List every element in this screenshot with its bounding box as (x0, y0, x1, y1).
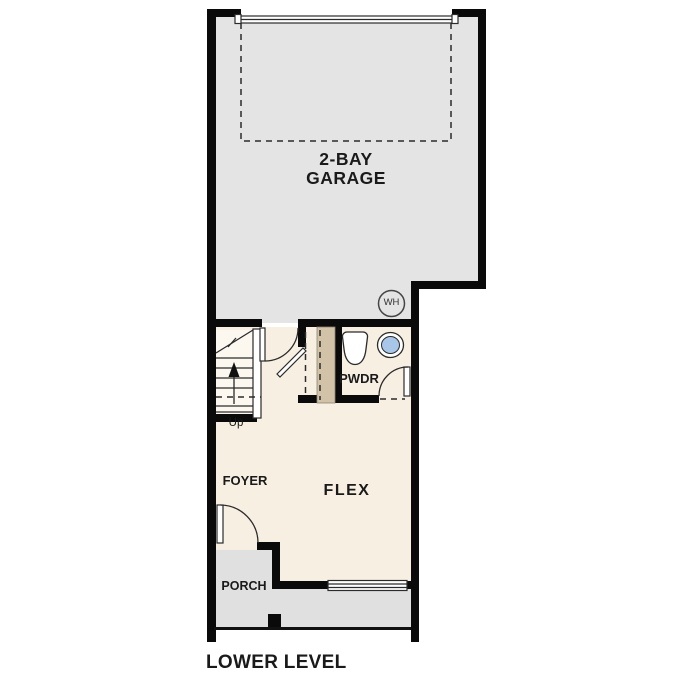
powder-room-label: PWDR (336, 371, 382, 386)
toilet (342, 332, 367, 365)
sink (378, 333, 404, 358)
garage-label: 2-BAY GARAGE (266, 150, 426, 188)
floor-plan: 2-BAY GARAGE WH PWDR Up FOYER FLEX PORCH… (0, 0, 687, 687)
porch-label: PORCH (217, 579, 271, 593)
garage-label-line2: GARAGE (266, 169, 426, 188)
stairs-up-label: Up (221, 417, 251, 429)
foyer-label: FOYER (219, 473, 271, 488)
flex-label: FLEX (318, 482, 376, 500)
garage-parking-dashed-outline (241, 23, 451, 141)
staircase (216, 329, 261, 418)
front-door (217, 505, 258, 543)
plan-linework (0, 0, 687, 687)
powder-room-door (379, 367, 410, 399)
flex-window (328, 581, 407, 591)
garage-label-line1: 2-BAY (266, 150, 426, 169)
garage-entry-door (260, 328, 298, 361)
plumbing-wall (317, 327, 335, 403)
page-title: LOWER LEVEL (206, 652, 436, 674)
understair-closet-door (277, 348, 306, 377)
garage-door (235, 15, 458, 24)
water-heater-label: WH (378, 297, 405, 308)
